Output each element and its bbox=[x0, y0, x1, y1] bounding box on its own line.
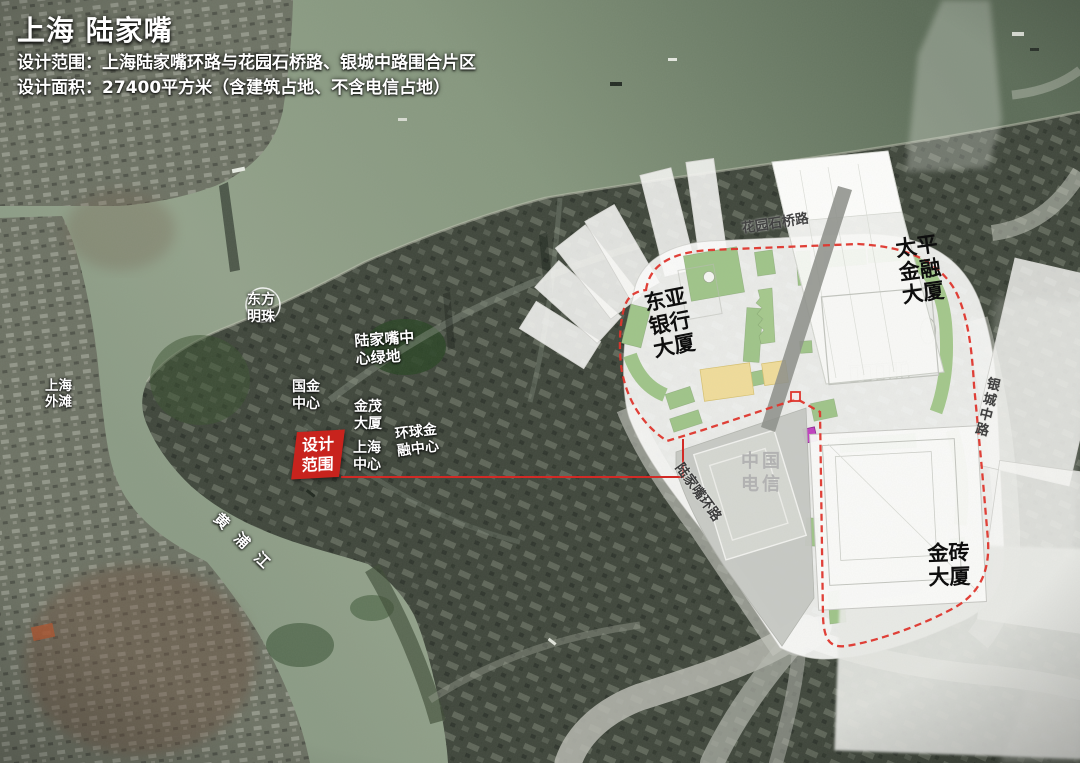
design-scope-tag: 设计范围 bbox=[291, 430, 345, 480]
label-golden-brick-tower: 金砖大厦 bbox=[927, 541, 973, 590]
header-design-area-line: 设计面积：27400平方米（含建筑占地、不含电信占地） bbox=[17, 78, 476, 99]
header-design-scope-line: 设计范围：上海陆家嘴环路与花园石桥路、银城中路围合片区 bbox=[17, 53, 476, 74]
label-jinmao-tower: 金茂大厦 bbox=[354, 399, 383, 433]
label-shanghai-tower: 上海中心 bbox=[353, 440, 382, 474]
label-guojin-center: 国金中心 bbox=[292, 379, 321, 413]
label-world-financial-center: 环球金融中心 bbox=[394, 421, 441, 460]
header: 上海 陆家嘴 设计范围：上海陆家嘴环路与花园石桥路、银城中路围合片区 设计面积：… bbox=[17, 9, 476, 100]
label-lujiazui-green-space: 陆家嘴中心绿地 bbox=[354, 328, 418, 368]
design-scope-tag-text: 设计范围 bbox=[301, 434, 335, 476]
label-china-telecom: 中国电信 bbox=[741, 450, 787, 497]
label-oriental-pearl: 东方明珠 bbox=[247, 292, 276, 326]
map-and-siteplan-graphic bbox=[0, 0, 1080, 763]
page-title: 上海 陆家嘴 bbox=[17, 9, 476, 49]
label-bund: 上海外滩 bbox=[45, 378, 73, 410]
vignette bbox=[0, 0, 1080, 763]
lujiazui-design-scope-map: 上海 陆家嘴 设计范围：上海陆家嘴环路与花园石桥路、银城中路围合片区 设计面积：… bbox=[0, 0, 1080, 763]
